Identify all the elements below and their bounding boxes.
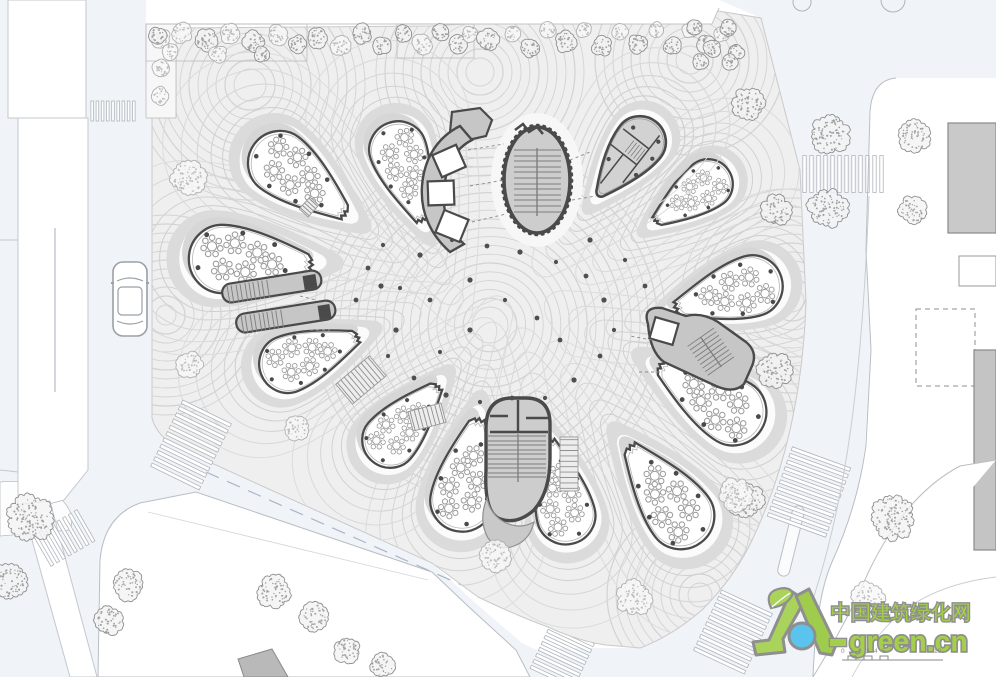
svg-text:5: 5 [882, 648, 886, 655]
svg-text:10: 10 [934, 648, 942, 655]
svg-text:2: 2 [858, 648, 862, 655]
svg-text:4: 4 [874, 648, 878, 655]
svg-text:1: 1 [850, 648, 854, 655]
svg-text:3: 3 [866, 648, 870, 655]
svg-text:0: 0 [841, 648, 845, 655]
